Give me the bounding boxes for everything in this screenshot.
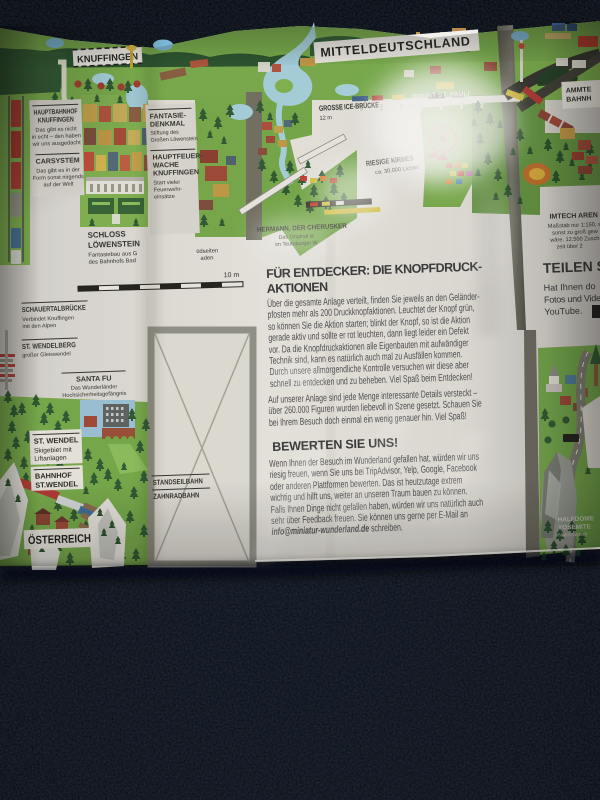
svg-text:Skigebiet mit: Skigebiet mit	[34, 446, 72, 454]
svg-text:TEILEN S: TEILEN S	[543, 258, 600, 276]
svg-text:mit den Alpen: mit den Alpen	[22, 323, 56, 330]
svg-text:FANTASIE-: FANTASIE-	[150, 112, 187, 120]
svg-text:Nationalpark: Nationalpark	[558, 532, 588, 539]
svg-text:ZAHNRADBAHN: ZAHNRADBAHN	[153, 490, 199, 501]
svg-text:12 m: 12 m	[319, 115, 332, 122]
svg-text:üdseiten: üdseiten	[196, 248, 218, 255]
svg-text:aden: aden	[200, 255, 213, 261]
svg-text:HALFDOME: HALFDOME	[558, 515, 595, 523]
svg-text:10 m: 10 m	[224, 272, 240, 279]
svg-text:zeit über 2: zeit über 2	[556, 244, 582, 251]
svg-text:SANTA FU: SANTA FU	[76, 373, 112, 383]
svg-text:AMMTE: AMMTE	[566, 86, 592, 94]
svg-text:ST. WENDELBERG: ST. WENDELBERG	[22, 340, 77, 351]
svg-text:BAHNH: BAHNH	[566, 95, 592, 103]
svg-text:Stiftung des: Stiftung des	[150, 130, 179, 137]
svg-text:ÖSTERREICH: ÖSTERREICH	[28, 532, 91, 547]
svg-text:Fotos und Vide: Fotos und Vide	[544, 293, 600, 305]
svg-text:YouTube.: YouTube.	[544, 306, 582, 317]
svg-text:Liftanlagen: Liftanlagen	[34, 455, 67, 463]
svg-text:auf der Welt: auf der Welt	[43, 181, 74, 188]
svg-text:DENKMAL: DENKMAL	[150, 120, 186, 128]
svg-text:ST. WENDEL: ST. WENDEL	[34, 435, 80, 446]
svg-text:WACHE: WACHE	[153, 162, 180, 170]
svg-text:einsätze: einsätze	[154, 194, 175, 201]
svg-text:LÖWENSTEIN: LÖWENSTEIN	[88, 239, 140, 250]
svg-text:SCHLOSS: SCHLOSS	[87, 229, 126, 239]
svg-text:KNUFFINGEN: KNUFFINGEN	[38, 116, 74, 124]
svg-text:Hat Ihnen do: Hat Ihnen do	[543, 281, 595, 293]
svg-text:Feuerwehr-: Feuerwehr-	[154, 187, 183, 194]
svg-text:YOSEMITE: YOSEMITE	[558, 523, 592, 531]
svg-text:Start vieler: Start vieler	[153, 180, 180, 187]
svg-text:STANDSEILBAHN: STANDSEILBAHN	[153, 476, 203, 487]
svg-text:ST.WENDEL: ST.WENDEL	[35, 479, 78, 490]
